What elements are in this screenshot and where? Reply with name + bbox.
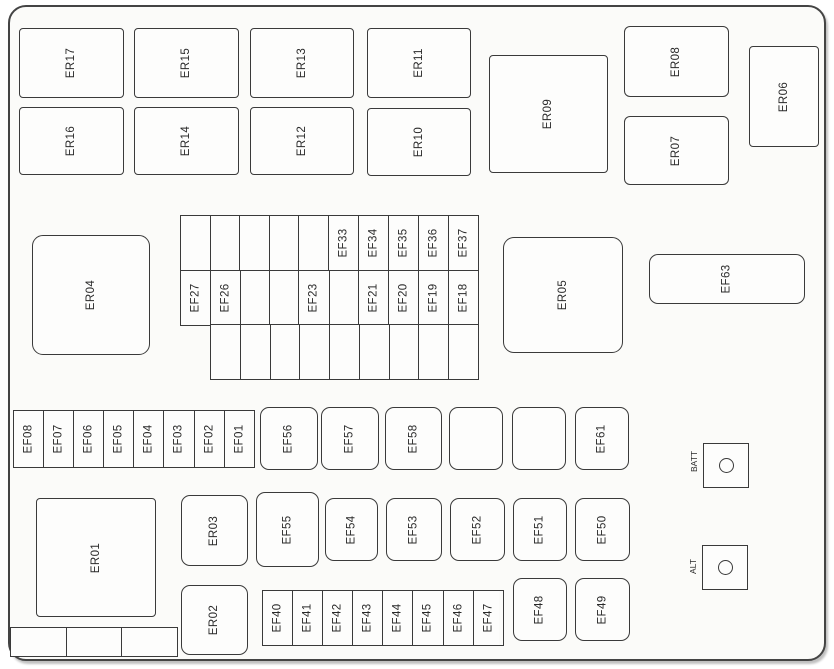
- fuse-slot-blank: [300, 324, 330, 380]
- fuse-ef08: EF08: [13, 410, 44, 468]
- fuse-ef63: EF63: [649, 254, 805, 304]
- fuse-slot-blank: [330, 270, 359, 326]
- relay-label: ER11: [413, 48, 425, 78]
- fuse-strip-ef08-ef01: EF08 EF07 EF06 EF05 EF04 EF03 EF02 EF01: [13, 410, 250, 468]
- fuse-ef21: EF21: [359, 270, 389, 326]
- terminal-stud-icon: [718, 560, 733, 575]
- blank-slot: [67, 627, 123, 657]
- fuse-slot-blank: [299, 215, 329, 271]
- fuse-ef36: EF36: [419, 215, 449, 271]
- fuse-ef50: EF50: [575, 498, 630, 561]
- terminal-batt: BATT: [688, 443, 749, 488]
- fuse-ef44: EF44: [383, 590, 413, 646]
- fuse-grid-bottom-row: [210, 324, 479, 380]
- relay-label: ER04: [85, 280, 97, 310]
- fuse-ef48: EF48: [513, 578, 567, 641]
- fuse-ef01: EF01: [225, 410, 255, 468]
- fuse-ef61: EF61: [575, 407, 629, 470]
- relay-label: ER14: [181, 126, 193, 156]
- fuse-slot-blank: [449, 324, 479, 380]
- blank-slot: [10, 627, 67, 657]
- fuse-ef23: EF23: [299, 270, 329, 326]
- fuse-slot-blank: [360, 324, 390, 380]
- relay-label: ER06: [778, 81, 790, 111]
- relay-er17: ER17: [19, 28, 124, 98]
- relay-er08: ER08: [624, 26, 729, 97]
- fuse-ef52: EF52: [450, 498, 505, 561]
- terminal-alt: ALT: [687, 545, 748, 590]
- relay-er04: ER04: [32, 235, 150, 355]
- fuse-ef57: EF57: [321, 407, 379, 470]
- fuse-ef19: EF19: [419, 270, 449, 326]
- fuse-ef04: EF04: [134, 410, 164, 468]
- relay-label: ER16: [66, 126, 78, 156]
- fuse-ef46: EF46: [444, 590, 474, 646]
- relay-er16: ER16: [19, 107, 124, 175]
- fuse-ef49: EF49: [575, 578, 630, 641]
- terminal-batt-label: BATT: [689, 460, 699, 472]
- fuse-slot-blank: [270, 215, 300, 271]
- fuse-ef27: EF27: [180, 270, 211, 326]
- relay-label: ER05: [557, 280, 569, 310]
- fuse-box-diagram: ER17 ER15 ER13 ER11 ER16 ER14 ER12 ER10 …: [0, 0, 834, 669]
- fuse-slot-blank: [330, 324, 360, 380]
- relay-label: ER17: [66, 48, 78, 78]
- fuse-ef56: EF56: [260, 407, 318, 470]
- fuse-slot-blank: [512, 407, 566, 470]
- relay-er02: ER02: [181, 585, 248, 655]
- relay-label: ER12: [296, 126, 308, 156]
- fuse-ef06: EF06: [74, 410, 104, 468]
- fuse-ef41: EF41: [293, 590, 323, 646]
- fuse-grid-top-row: EF33 EF34 EF35 EF36 EF37: [180, 215, 479, 271]
- blank-slot-strip: [10, 627, 178, 657]
- fuse-ef54: EF54: [325, 498, 378, 561]
- relay-er14: ER14: [134, 107, 239, 175]
- relay-label: ER09: [543, 99, 555, 129]
- relay-label: ER13: [296, 48, 308, 78]
- blank-slot: [122, 627, 178, 657]
- relay-er01: ER01: [36, 498, 156, 617]
- fuse-ef51: EF51: [513, 498, 567, 561]
- relay-er12: ER12: [250, 107, 354, 175]
- relay-er15: ER15: [134, 28, 239, 98]
- fuse-ef45: EF45: [413, 590, 443, 646]
- fuse-slot-blank: [180, 215, 211, 271]
- relay-er11: ER11: [367, 28, 471, 98]
- fuse-slot-blank: [449, 407, 503, 470]
- relay-er13: ER13: [250, 28, 354, 98]
- relay-label: ER07: [671, 135, 683, 165]
- fuse-ef35: EF35: [389, 215, 419, 271]
- fuse-ef34: EF34: [359, 215, 389, 271]
- terminal-alt-label: ALT: [688, 562, 698, 574]
- fuse-ef40: EF40: [262, 590, 293, 646]
- fuse-ef47: EF47: [474, 590, 504, 646]
- fuse-ef02: EF02: [195, 410, 225, 468]
- fuse-slot-blank: [211, 215, 241, 271]
- terminal-alt-post: [702, 545, 748, 590]
- fuse-ef03: EF03: [164, 410, 194, 468]
- fuse-ef53: EF53: [386, 498, 442, 561]
- fuse-ef37: EF37: [449, 215, 479, 271]
- relay-label: ER15: [181, 48, 193, 78]
- fuse-ef07: EF07: [44, 410, 74, 468]
- relay-er10: ER10: [367, 108, 471, 176]
- relay-er09: ER09: [489, 55, 608, 173]
- fuse-label: EF63: [721, 264, 733, 293]
- relay-er06: ER06: [749, 46, 819, 147]
- fuse-strip-ef40-ef47: EF40 EF41 EF42 EF43 EF44 EF45 EF46 EF47: [262, 590, 499, 646]
- relay-er07: ER07: [624, 116, 729, 185]
- terminal-stud-icon: [719, 458, 734, 473]
- terminal-batt-post: [703, 443, 749, 488]
- fuse-ef55: EF55: [256, 492, 319, 567]
- fuse-slot-blank: [210, 324, 241, 380]
- relay-label: ER08: [671, 46, 683, 76]
- fuse-ef33: EF33: [329, 215, 359, 271]
- relay-label: ER10: [413, 127, 425, 157]
- relay-er03: ER03: [181, 495, 248, 566]
- fuse-ef42: EF42: [323, 590, 353, 646]
- fuse-ef26: EF26: [211, 270, 241, 326]
- relay-er05: ER05: [503, 237, 623, 353]
- fuse-slot-blank: [271, 324, 301, 380]
- fuse-ef05: EF05: [104, 410, 134, 468]
- fuse-slot-blank: [241, 324, 271, 380]
- fuse-ef58: EF58: [385, 407, 442, 470]
- fuse-slot-blank: [390, 324, 420, 380]
- fuse-ef20: EF20: [389, 270, 419, 326]
- fuse-grid-middle-row: EF27 EF26 EF23 EF21 EF20 EF19 EF18: [180, 270, 479, 326]
- fuse-slot-blank: [419, 324, 449, 380]
- fuse-slot-blank: [270, 270, 299, 326]
- fuse-ef18: EF18: [449, 270, 479, 326]
- fuse-ef43: EF43: [353, 590, 383, 646]
- fuse-slot-blank: [240, 215, 270, 271]
- fuse-slot-blank: [241, 270, 270, 326]
